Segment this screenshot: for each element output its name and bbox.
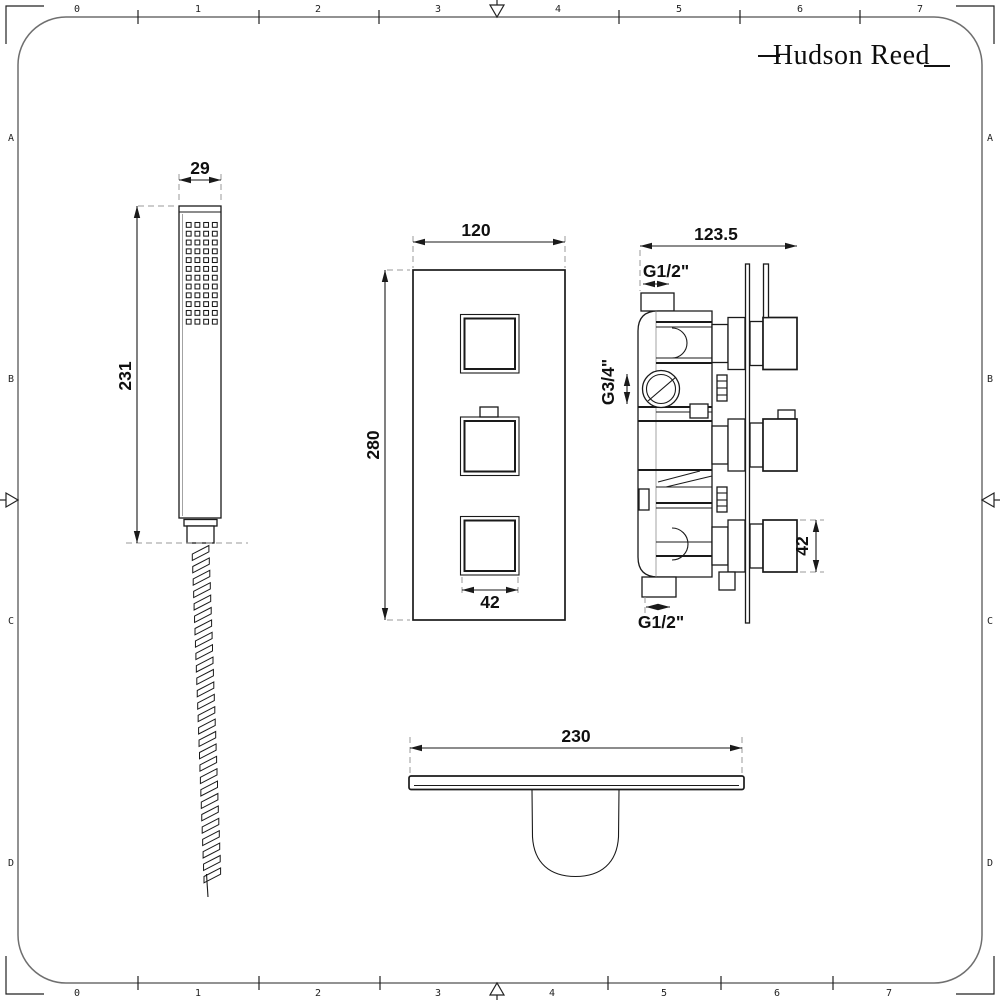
dim-handset-width-label: 29: [190, 158, 210, 178]
row-left-a: A: [8, 133, 14, 144]
dim-outlet-side: G3/4": [598, 359, 627, 405]
ruler-top-4: 4: [555, 4, 561, 15]
row-right-a: A: [987, 133, 993, 144]
dim-inlet-bottom-label: G1/2": [638, 612, 684, 632]
centerline-marker-left: [0, 493, 18, 507]
dim-plate-height-label: 280: [363, 430, 383, 459]
dim-plate-height: 280: [363, 270, 410, 620]
ruler-bottom-3: 3: [435, 988, 441, 999]
ruler-bottom-5: 5: [661, 988, 667, 999]
side-knob-2-tab: [778, 410, 795, 419]
row-left-c: C: [8, 616, 14, 627]
ruler-top-1: 1: [195, 4, 201, 15]
hand-shower-view: 29 231: [115, 158, 248, 897]
ruler-bottom-0: 0: [74, 988, 80, 999]
dim-outlet-side-label: G3/4": [598, 359, 618, 405]
ruler-bottom-2: 2: [315, 988, 321, 999]
dim-knob-side-label: 42: [792, 536, 812, 556]
valve-housing-profile: [532, 790, 619, 877]
logo-right-rule: [924, 65, 950, 67]
knob-2-tab: [480, 407, 498, 417]
handset-flange: [184, 520, 217, 527]
ruler-bottom-6: 6: [774, 988, 780, 999]
side-knob-row-3: [712, 520, 797, 590]
side-knob-2: [763, 419, 797, 471]
side-knob-1: [763, 318, 797, 370]
wall-plate-section: [746, 264, 750, 623]
hose-coil: [192, 546, 220, 883]
row-right-d: D: [987, 858, 993, 869]
dim-plate-width-label: 120: [461, 220, 490, 240]
valve-front-view: 120 280 42: [363, 220, 565, 620]
valve-side-view: 123.5 G1/2" G3/4" G1/2" 42: [598, 224, 824, 632]
dim-handset-width: 29: [138, 158, 221, 206]
ruler-top-5: 5: [676, 4, 682, 15]
dim-inlet-top-label: G1/2": [643, 261, 689, 281]
row-right-b: B: [987, 374, 993, 385]
mixer-plate: [413, 270, 565, 620]
dim-inlet-bottom: G1/2": [638, 597, 684, 632]
side-outlet-circle: [643, 371, 680, 408]
row-left-b: B: [8, 374, 14, 385]
ruler-top-3: 3: [435, 4, 441, 15]
dim-inlet-top: G1/2": [643, 261, 689, 284]
shelf-plate: [409, 776, 744, 790]
dim-plate-width: 120: [413, 220, 565, 268]
valve-body: [638, 311, 712, 577]
ruler-top-0: 0: [74, 4, 80, 15]
dim-shelf-width-label: 230: [561, 726, 590, 746]
ruler-bottom-4: 4: [549, 988, 555, 999]
centerline-marker-bottom: [490, 983, 504, 1000]
side-knob-row-2: [712, 410, 797, 471]
dim-shelf-width: 230: [410, 726, 742, 774]
ruler-bottom-7: 7: [886, 988, 892, 999]
row-left-d: D: [8, 858, 14, 869]
ruler-bottom-1: 1: [195, 988, 201, 999]
centerline-marker-top: [490, 0, 504, 17]
dim-handset-height-label: 231: [115, 361, 135, 390]
bottom-inlet-port: [642, 577, 676, 597]
drawing-canvas: 0 1 2 3 4 5 6 7 0 1 2 3 4 5 6 7 A B C D: [0, 0, 1000, 1000]
plan-view: 230: [409, 726, 744, 877]
side-knob-row-1: [712, 318, 797, 370]
ruler-top-7: 7: [917, 4, 923, 15]
brand-logo: Hudson Reed: [758, 40, 950, 72]
top-inlet-port: [641, 293, 674, 311]
centerline-marker-right: [982, 493, 1000, 507]
dim-knob-front-label: 42: [480, 592, 500, 612]
ruler-top-2: 2: [315, 4, 321, 15]
ruler-top-6: 6: [797, 4, 803, 15]
row-right-c: C: [987, 616, 993, 627]
hose-connector: [187, 526, 214, 543]
dim-valve-depth-label: 123.5: [694, 224, 738, 244]
drawing-sheet: 0 1 2 3 4 5 6 7 0 1 2 3 4 5 6 7 A B C D: [0, 0, 1000, 1000]
brand-name: Hudson Reed: [773, 40, 930, 72]
top-riser-pipe: [764, 264, 769, 318]
ruler-bottom: 0 1 2 3 4 5 6 7: [74, 976, 892, 999]
